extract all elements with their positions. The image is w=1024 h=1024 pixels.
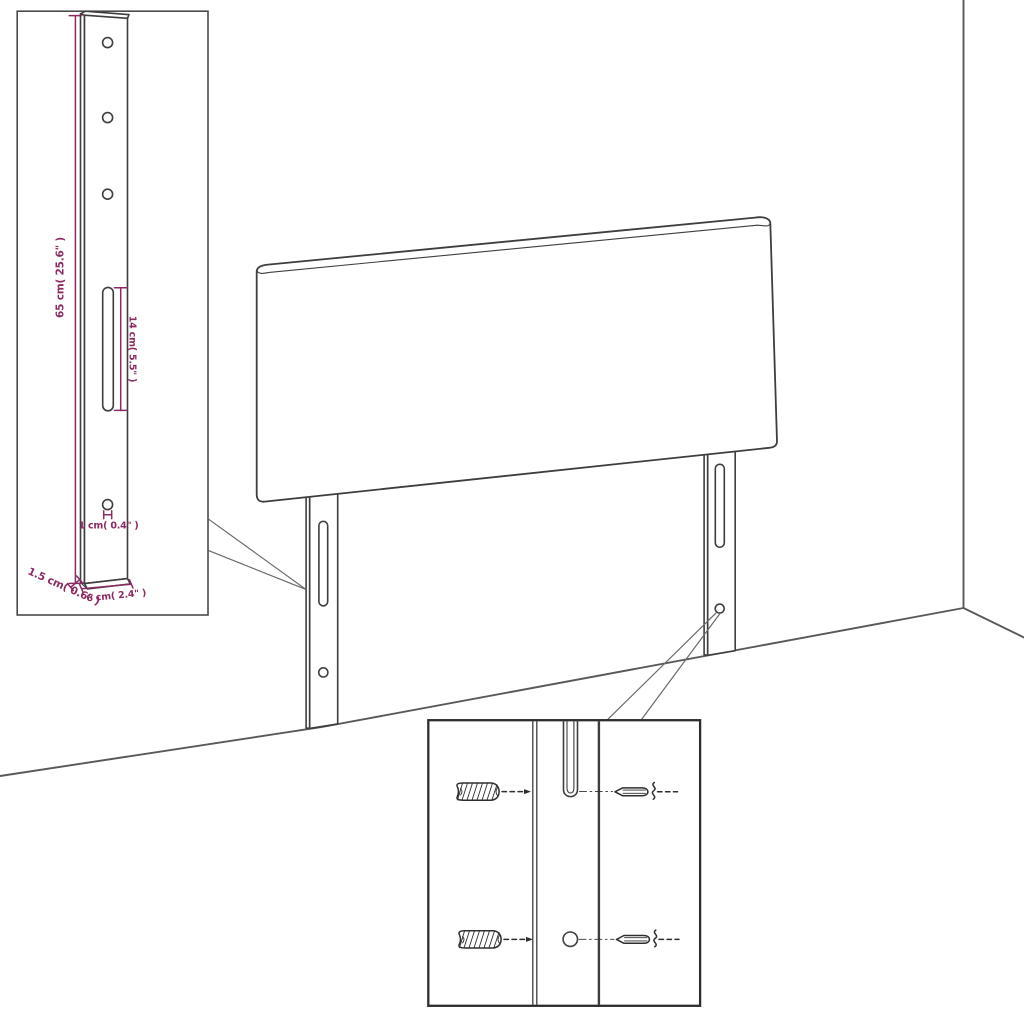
left-leg-front-face (310, 494, 338, 729)
headboard-panel (257, 217, 777, 501)
bracket-drawing (81, 11, 131, 589)
leader-lines-mounting-detail (608, 613, 720, 720)
bracket-detail-inset: 65 cm( 25.6" ) 14 cm( 5.5" ) 1 cm( 0.4" … (17, 11, 208, 615)
floor-line-right (964, 608, 1024, 638)
headboard-dimension-diagram: 65 cm( 25.6" ) 14 cm( 5.5" ) 1 cm( 0.4" … (0, 0, 1024, 1024)
headboard-left-leg (306, 494, 338, 729)
headboard-panel-face (257, 217, 777, 501)
dimension-hole-label: 1 cm( 0.4" ) (78, 521, 138, 532)
mounting-detail-inset (428, 720, 700, 1006)
dimension-slot-label: 14 cm( 5.5" ) (127, 316, 138, 383)
leader-line (209, 551, 307, 590)
dimension-height-label: 65 cm( 25.6" ) (55, 237, 67, 318)
leader-line (608, 613, 717, 720)
leader-line (641, 614, 720, 720)
leader-lines-bracket-detail (209, 519, 307, 589)
diagram-svg: 65 cm( 25.6" ) 14 cm( 5.5" ) 1 cm( 0.4" … (0, 0, 1024, 1024)
leader-line (209, 519, 307, 589)
headboard-right-leg (704, 450, 735, 655)
